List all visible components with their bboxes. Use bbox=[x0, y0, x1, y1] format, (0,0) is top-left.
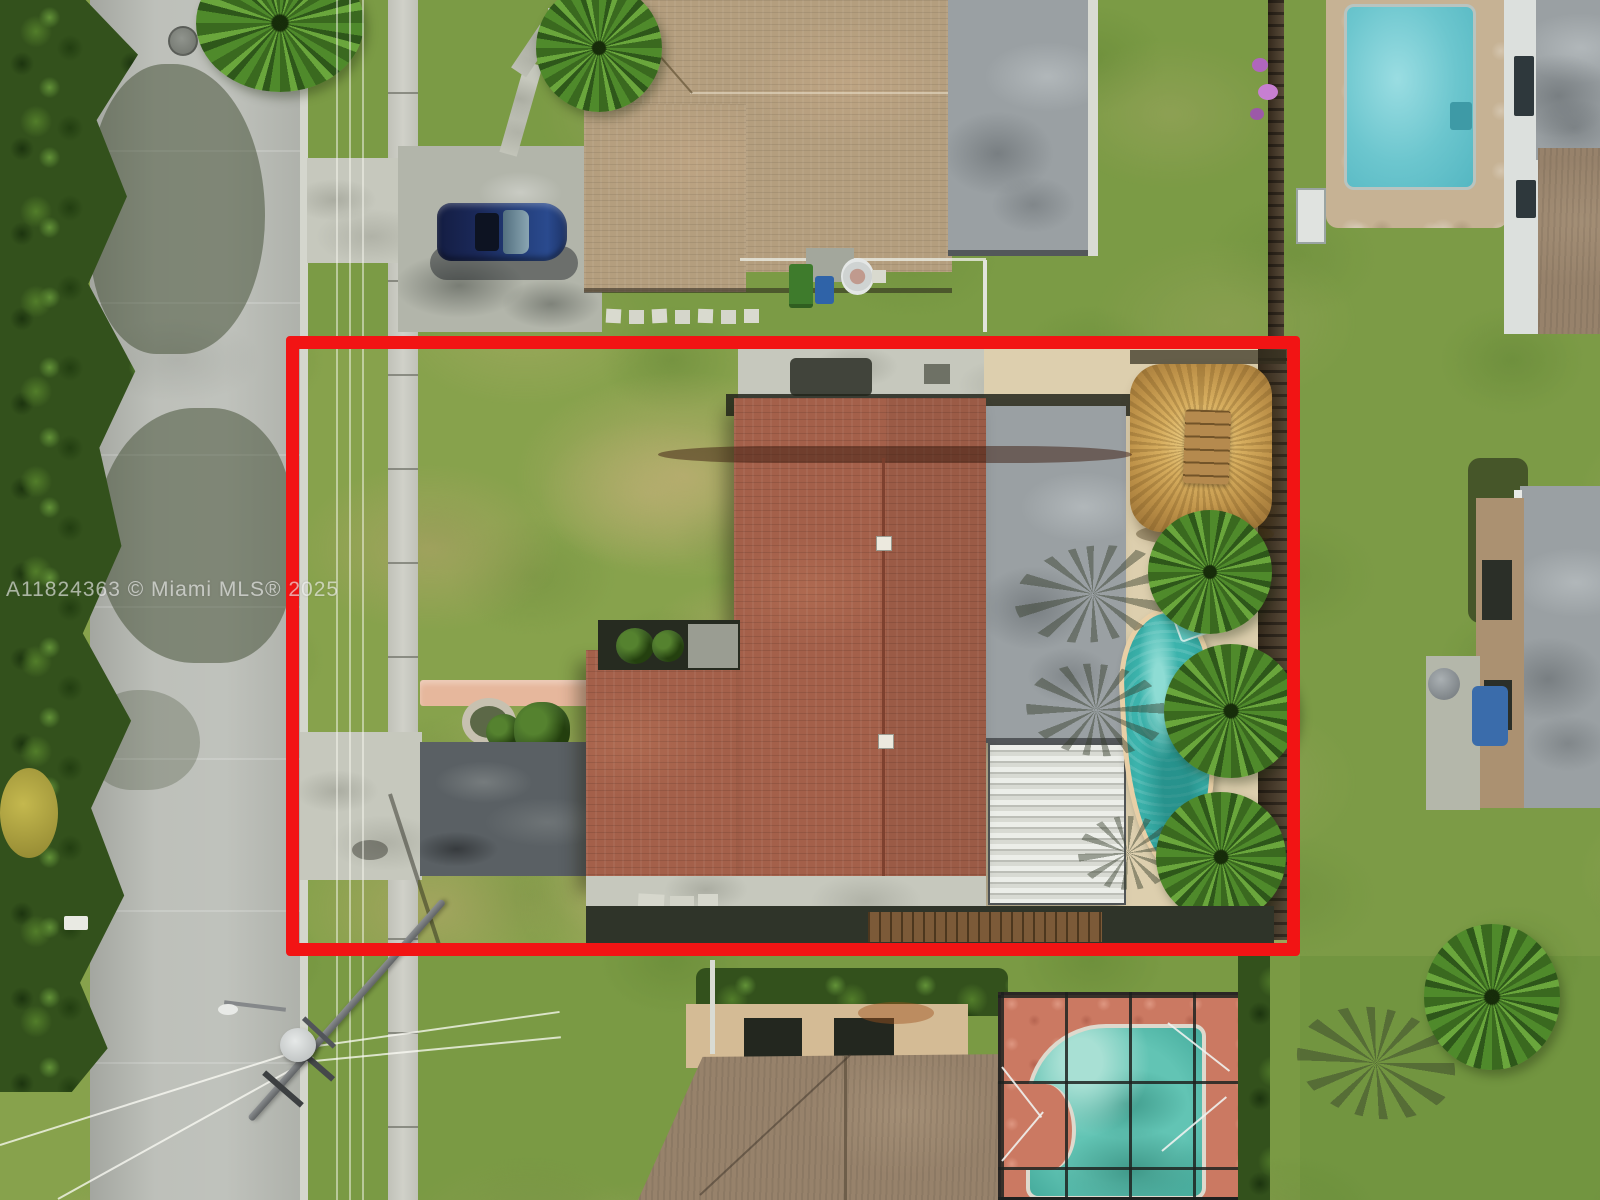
green-trash-bin bbox=[789, 264, 813, 308]
flower-bush bbox=[1250, 108, 1264, 120]
stepping-stone bbox=[629, 310, 644, 324]
roof-eave-shadow bbox=[584, 288, 952, 293]
ne-house-flat-roof bbox=[1536, 0, 1600, 160]
manhole-cover bbox=[168, 26, 198, 56]
ne-house-shingle-roof bbox=[1538, 148, 1600, 334]
round-tub bbox=[841, 258, 874, 295]
aerial-photo: A11824363 © Miami MLS® 2025 bbox=[0, 0, 1600, 1200]
stepping-stone bbox=[652, 309, 668, 324]
pool-skimmer-step bbox=[1450, 102, 1472, 130]
dome-vent bbox=[1428, 668, 1460, 700]
stepping-stone bbox=[744, 309, 759, 323]
mls-watermark: A11824363 © Miami MLS® 2025 bbox=[6, 578, 339, 602]
ac-unit bbox=[1296, 188, 1326, 244]
north-wall-post bbox=[1088, 0, 1098, 256]
ne-pool bbox=[1344, 4, 1476, 190]
flower-bush bbox=[1252, 58, 1268, 72]
blue-recycle-bin bbox=[815, 276, 834, 304]
car-windshield bbox=[503, 210, 529, 254]
roof-ridge-line bbox=[690, 92, 952, 94]
property-boundary-outline bbox=[286, 336, 1300, 956]
north-house-roof-wing bbox=[584, 104, 746, 292]
fence-post bbox=[983, 260, 987, 332]
stepping-stone bbox=[872, 270, 886, 283]
north-flat-roof bbox=[948, 0, 1090, 256]
north-driveway-approach bbox=[307, 158, 399, 263]
tree-shadow bbox=[96, 408, 292, 663]
ne-house-window bbox=[1516, 180, 1536, 218]
south-house-window bbox=[834, 1018, 894, 1058]
white-fence-post bbox=[710, 960, 715, 1054]
palm-tree bbox=[1424, 924, 1560, 1070]
east-house-window bbox=[1482, 560, 1512, 620]
ne-fence bbox=[1268, 0, 1284, 348]
ne-house-window bbox=[1514, 56, 1534, 116]
stepping-stone bbox=[698, 309, 713, 324]
north-flat-roof-edge bbox=[948, 250, 1090, 256]
mailbox bbox=[64, 916, 88, 930]
flower-bush bbox=[1258, 84, 1278, 100]
east-house-wall bbox=[1476, 498, 1524, 808]
stepping-stone bbox=[675, 310, 690, 324]
wall-rust-stain bbox=[858, 1002, 934, 1024]
car-sunroof bbox=[475, 213, 499, 251]
south-house-window bbox=[744, 1018, 802, 1058]
southeast-hedge bbox=[1238, 950, 1270, 1200]
pool-screen-enclosure bbox=[998, 992, 1242, 1200]
east-house-flat-roof bbox=[1520, 486, 1600, 808]
street-light-head bbox=[218, 1004, 238, 1015]
blue-tarp bbox=[1472, 686, 1508, 746]
yellow-bush bbox=[0, 768, 58, 858]
stepping-stone bbox=[721, 310, 736, 324]
south-roof-ridge bbox=[844, 1056, 847, 1200]
stepping-stone bbox=[606, 309, 622, 324]
blue-car bbox=[437, 203, 567, 261]
transformer bbox=[280, 1028, 316, 1062]
